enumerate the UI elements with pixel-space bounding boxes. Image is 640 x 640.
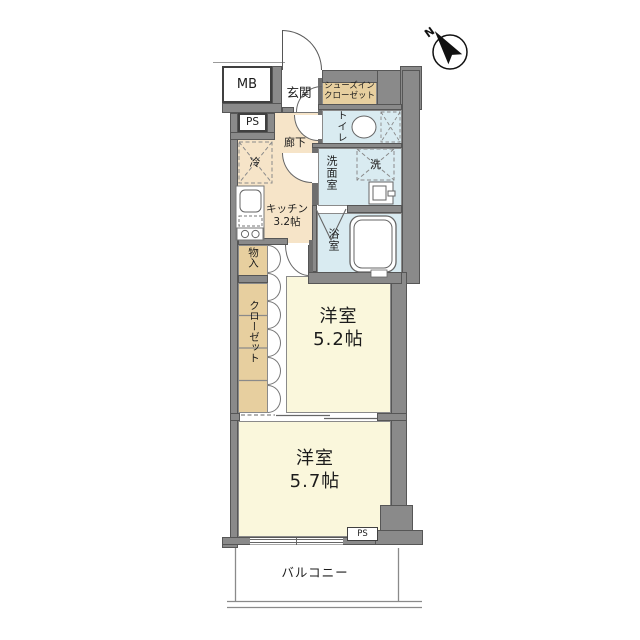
shoe-closet-label: シューズイン クローゼット (320, 81, 379, 101)
hallway-label: 廊下 (281, 136, 309, 150)
ps-duct-flange (375, 530, 423, 545)
wall (230, 413, 240, 421)
washroom-label: 洗面室 (323, 155, 339, 199)
closet-label: クローゼット (247, 300, 262, 398)
wall (222, 103, 282, 113)
wall (238, 275, 268, 283)
wall (309, 240, 313, 272)
wall (238, 238, 288, 245)
meter-box-label: MB (222, 77, 272, 93)
entrance-door-arc (282, 30, 322, 70)
wall (312, 183, 318, 205)
bedroom-door-arc (285, 245, 309, 276)
wall (347, 205, 402, 213)
floor-plan: N MB PS 玄関 シューズイン クローゼット トイレ 廊下 冷 洗面室 洗 … (0, 0, 640, 640)
wall (377, 413, 407, 421)
washer-label: 洗 (357, 158, 394, 172)
refrigerator-label: 冷 (238, 156, 272, 170)
pipe-space-lower-label: PS (347, 529, 378, 540)
entrance-label: 玄関 (278, 85, 320, 101)
kitchen-label: キッチン 3.2帖 (258, 203, 316, 229)
wall (230, 113, 238, 545)
storage-label: 物入 (246, 247, 261, 275)
wall (308, 272, 402, 284)
wall (282, 107, 294, 113)
wall (402, 70, 420, 284)
balcony-label: バルコニー (265, 565, 365, 581)
wall (230, 132, 275, 140)
toilet-label: トイレ (333, 110, 348, 146)
bathroom-label: 浴室 (325, 228, 341, 262)
pipe-space-upper-label: PS (238, 116, 267, 129)
wall (312, 143, 402, 148)
wall (312, 148, 318, 153)
western-room-b-label: 洋室 5.7帖 (250, 448, 380, 493)
wall (318, 104, 402, 110)
sliding-door (276, 416, 377, 419)
room-divider-opening (240, 414, 276, 421)
compass-north-label: N (422, 24, 437, 40)
compass-icon: N (422, 24, 467, 69)
western-room-a-label: 洋室 5.2帖 (286, 306, 391, 351)
sliding-door-track (276, 414, 377, 421)
